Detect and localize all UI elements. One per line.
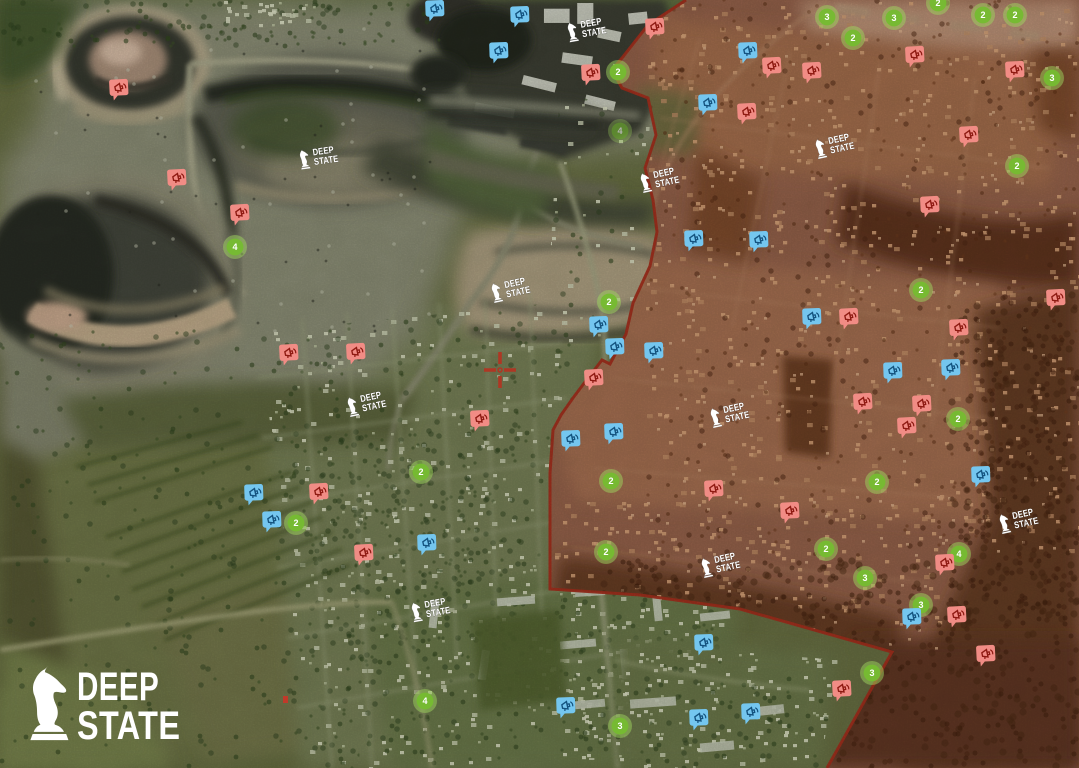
svg-text:2: 2 xyxy=(1012,10,1017,20)
svg-text:3: 3 xyxy=(869,668,874,678)
svg-text:2: 2 xyxy=(608,476,613,486)
svg-text:3: 3 xyxy=(1049,73,1054,83)
svg-text:3: 3 xyxy=(862,573,867,583)
svg-text:4: 4 xyxy=(232,242,237,252)
svg-text:2: 2 xyxy=(1014,161,1019,171)
svg-text:4: 4 xyxy=(617,126,622,136)
svg-text:2: 2 xyxy=(850,33,855,43)
svg-text:2: 2 xyxy=(935,0,940,8)
svg-text:3: 3 xyxy=(617,721,622,731)
svg-text:2: 2 xyxy=(293,518,298,528)
svg-text:2: 2 xyxy=(980,10,985,20)
svg-text:2: 2 xyxy=(418,467,423,477)
svg-text:2: 2 xyxy=(603,547,608,557)
svg-text:2: 2 xyxy=(918,285,923,295)
svg-text:2: 2 xyxy=(606,297,611,307)
svg-text:2: 2 xyxy=(955,414,960,424)
svg-text:3: 3 xyxy=(824,12,829,22)
svg-text:4: 4 xyxy=(956,549,961,559)
svg-text:3: 3 xyxy=(891,13,896,23)
svg-text:2: 2 xyxy=(874,477,879,487)
svg-text:4: 4 xyxy=(422,696,427,706)
svg-text:2: 2 xyxy=(615,67,620,77)
svg-text:STATE: STATE xyxy=(77,703,180,748)
svg-text:2: 2 xyxy=(823,544,828,554)
